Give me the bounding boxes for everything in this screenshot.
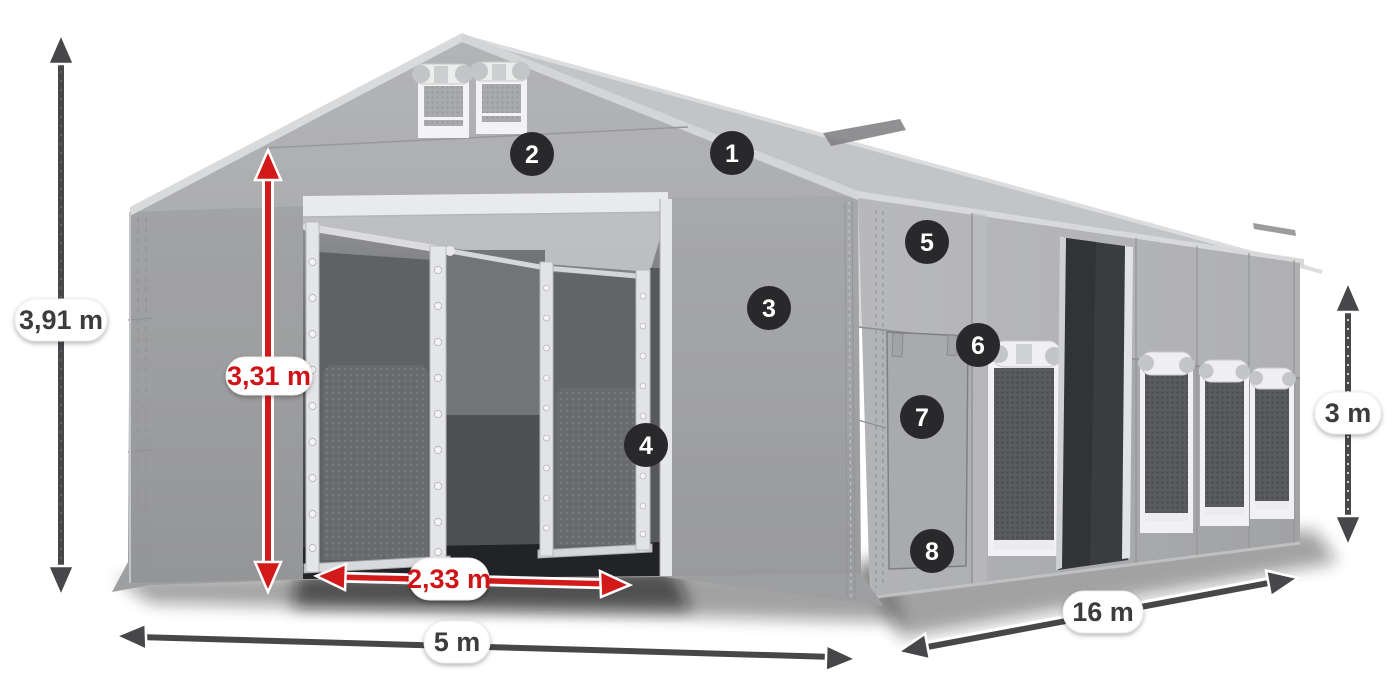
callout-8-number: 8 <box>925 538 939 566</box>
callout-4-number: 4 <box>639 432 653 460</box>
door-flap-tab <box>947 335 957 356</box>
callout-3[interactable]: 3 <box>747 286 791 330</box>
tent-diagram-page: 1 2 3 4 5 6 7 8 <box>0 0 1400 700</box>
side-window-2 <box>1138 352 1195 533</box>
inner-door-frame-rear <box>538 262 652 558</box>
side-window-1 <box>988 341 1063 556</box>
callout-1[interactable]: 1 <box>710 131 754 175</box>
callout-7-number: 7 <box>915 404 929 432</box>
dimension-side-height: 3 m <box>1315 282 1381 546</box>
dimension-label-side-height: 3 m <box>1325 398 1372 428</box>
gable-vent-left <box>412 64 473 138</box>
dimension-total-height: 3,91 m <box>15 34 107 596</box>
side-window-4 <box>1249 368 1296 519</box>
callout-4[interactable]: 4 <box>624 423 668 467</box>
callout-6-number: 6 <box>971 332 985 360</box>
callout-6[interactable]: 6 <box>956 323 1000 367</box>
callout-1-number: 1 <box>725 140 739 168</box>
roof-vent-roll <box>823 119 906 146</box>
dimension-label-width: 5 m <box>434 627 481 657</box>
tent-interior <box>303 199 668 579</box>
door-flap-tab <box>892 333 903 357</box>
roof-vent-roll <box>1253 223 1296 236</box>
side-doorway-opening <box>1056 236 1133 570</box>
callout-2-number: 2 <box>525 141 539 169</box>
side-window-3 <box>1199 360 1251 526</box>
callout-3-number: 3 <box>762 295 776 323</box>
callout-5-number: 5 <box>920 229 934 257</box>
callout-8[interactable]: 8 <box>910 529 954 573</box>
gable-vent-right <box>470 62 530 134</box>
dimension-label-length: 16 m <box>1072 597 1134 627</box>
dimension-label-total-height: 3,91 m <box>19 305 103 335</box>
dimension-width: 5 m <box>116 621 856 671</box>
callout-5[interactable]: 5 <box>905 220 949 264</box>
callout-2[interactable]: 2 <box>510 132 554 176</box>
dimension-label-entrance-width: 2,33 m <box>407 564 491 594</box>
tent-diagram: 1 2 3 4 5 6 7 8 <box>0 0 1400 700</box>
opening-pole <box>660 199 672 576</box>
dimension-label-entrance-height: 3,31 m <box>227 361 311 391</box>
callout-7[interactable]: 7 <box>900 395 944 439</box>
inner-door-frame-front <box>304 222 450 573</box>
